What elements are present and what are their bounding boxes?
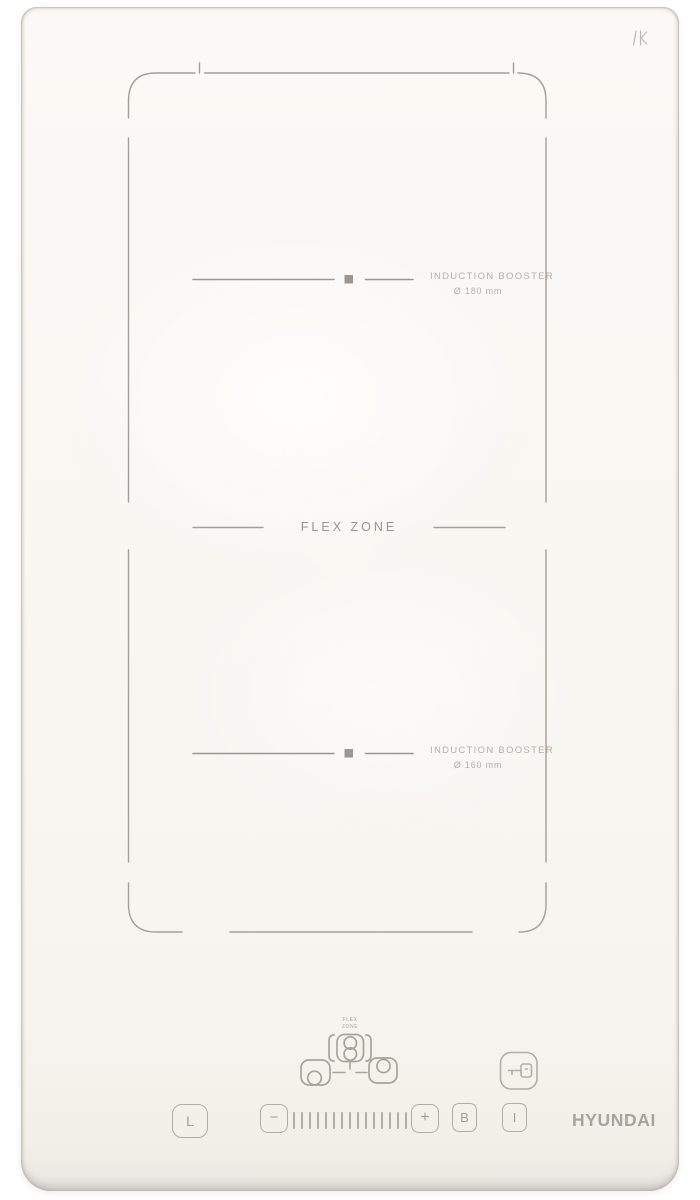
zone-bottom-marking bbox=[193, 749, 413, 758]
key-lock-icon[interactable] bbox=[501, 1053, 538, 1090]
plus-button[interactable]: + bbox=[411, 1104, 439, 1133]
zone-top-marking bbox=[193, 275, 413, 284]
flex-zone-key-label: FLEX ZONE bbox=[330, 1017, 370, 1030]
flex-zone-full-icon[interactable] bbox=[329, 1035, 371, 1062]
plus-button-label: + bbox=[420, 1109, 429, 1127]
slider-tick[interactable] bbox=[397, 1112, 399, 1129]
slider-tick[interactable] bbox=[349, 1112, 351, 1129]
zone-bottom-outline bbox=[129, 550, 547, 932]
flex-lower-zone-icon[interactable] bbox=[301, 1060, 330, 1085]
slider-tick[interactable] bbox=[325, 1112, 327, 1129]
slider-tick[interactable] bbox=[357, 1112, 359, 1129]
booster-button[interactable]: B bbox=[452, 1103, 477, 1132]
slider-tick[interactable] bbox=[341, 1112, 343, 1129]
flex-zone-title: FLEX ZONE bbox=[288, 520, 410, 534]
cooktop-photo: INDUCTION BOOSTER Ø 180 mm FLEX ZONE IND… bbox=[0, 0, 700, 1200]
slider-tick[interactable] bbox=[309, 1112, 311, 1129]
slider-tick[interactable] bbox=[381, 1112, 383, 1129]
brand-logo: HYUNDAI bbox=[572, 1110, 656, 1131]
zone-top-booster-label: INDUCTION BOOSTER bbox=[430, 271, 554, 282]
timer-button-label: L bbox=[186, 1113, 194, 1129]
zone-top-diameter-label: Ø 180 mm bbox=[432, 286, 524, 296]
power-button-label: I bbox=[513, 1110, 517, 1125]
brand-etch-mark bbox=[634, 31, 647, 45]
timer-button[interactable]: L bbox=[172, 1104, 208, 1138]
flex-upper-zone-icon[interactable] bbox=[369, 1058, 397, 1083]
bracket-right bbox=[366, 1035, 371, 1061]
slider-tick[interactable] bbox=[293, 1112, 295, 1129]
flex-zone-key-label-line2: ZONE bbox=[330, 1024, 370, 1031]
minus-button[interactable]: − bbox=[260, 1104, 288, 1133]
zone-top-outline bbox=[129, 63, 547, 502]
slider-tick[interactable] bbox=[389, 1112, 391, 1129]
slider-tick[interactable] bbox=[301, 1112, 303, 1129]
zone-bottom-booster-label: INDUCTION BOOSTER bbox=[430, 745, 554, 756]
zone-bottom-diameter-label: Ø 160 mm bbox=[432, 760, 524, 770]
booster-button-label: B bbox=[460, 1110, 469, 1125]
minus-button-label: − bbox=[270, 1109, 279, 1126]
slider-tick[interactable] bbox=[365, 1112, 367, 1129]
flex-zone-mode-connector bbox=[333, 1062, 367, 1073]
slider-tick[interactable] bbox=[405, 1112, 407, 1129]
power-slider[interactable] bbox=[293, 1110, 407, 1130]
bracket-left bbox=[329, 1035, 334, 1061]
slider-tick[interactable] bbox=[333, 1112, 335, 1129]
slider-tick[interactable] bbox=[317, 1112, 319, 1129]
slider-tick[interactable] bbox=[373, 1112, 375, 1129]
power-button[interactable]: I bbox=[502, 1103, 527, 1132]
